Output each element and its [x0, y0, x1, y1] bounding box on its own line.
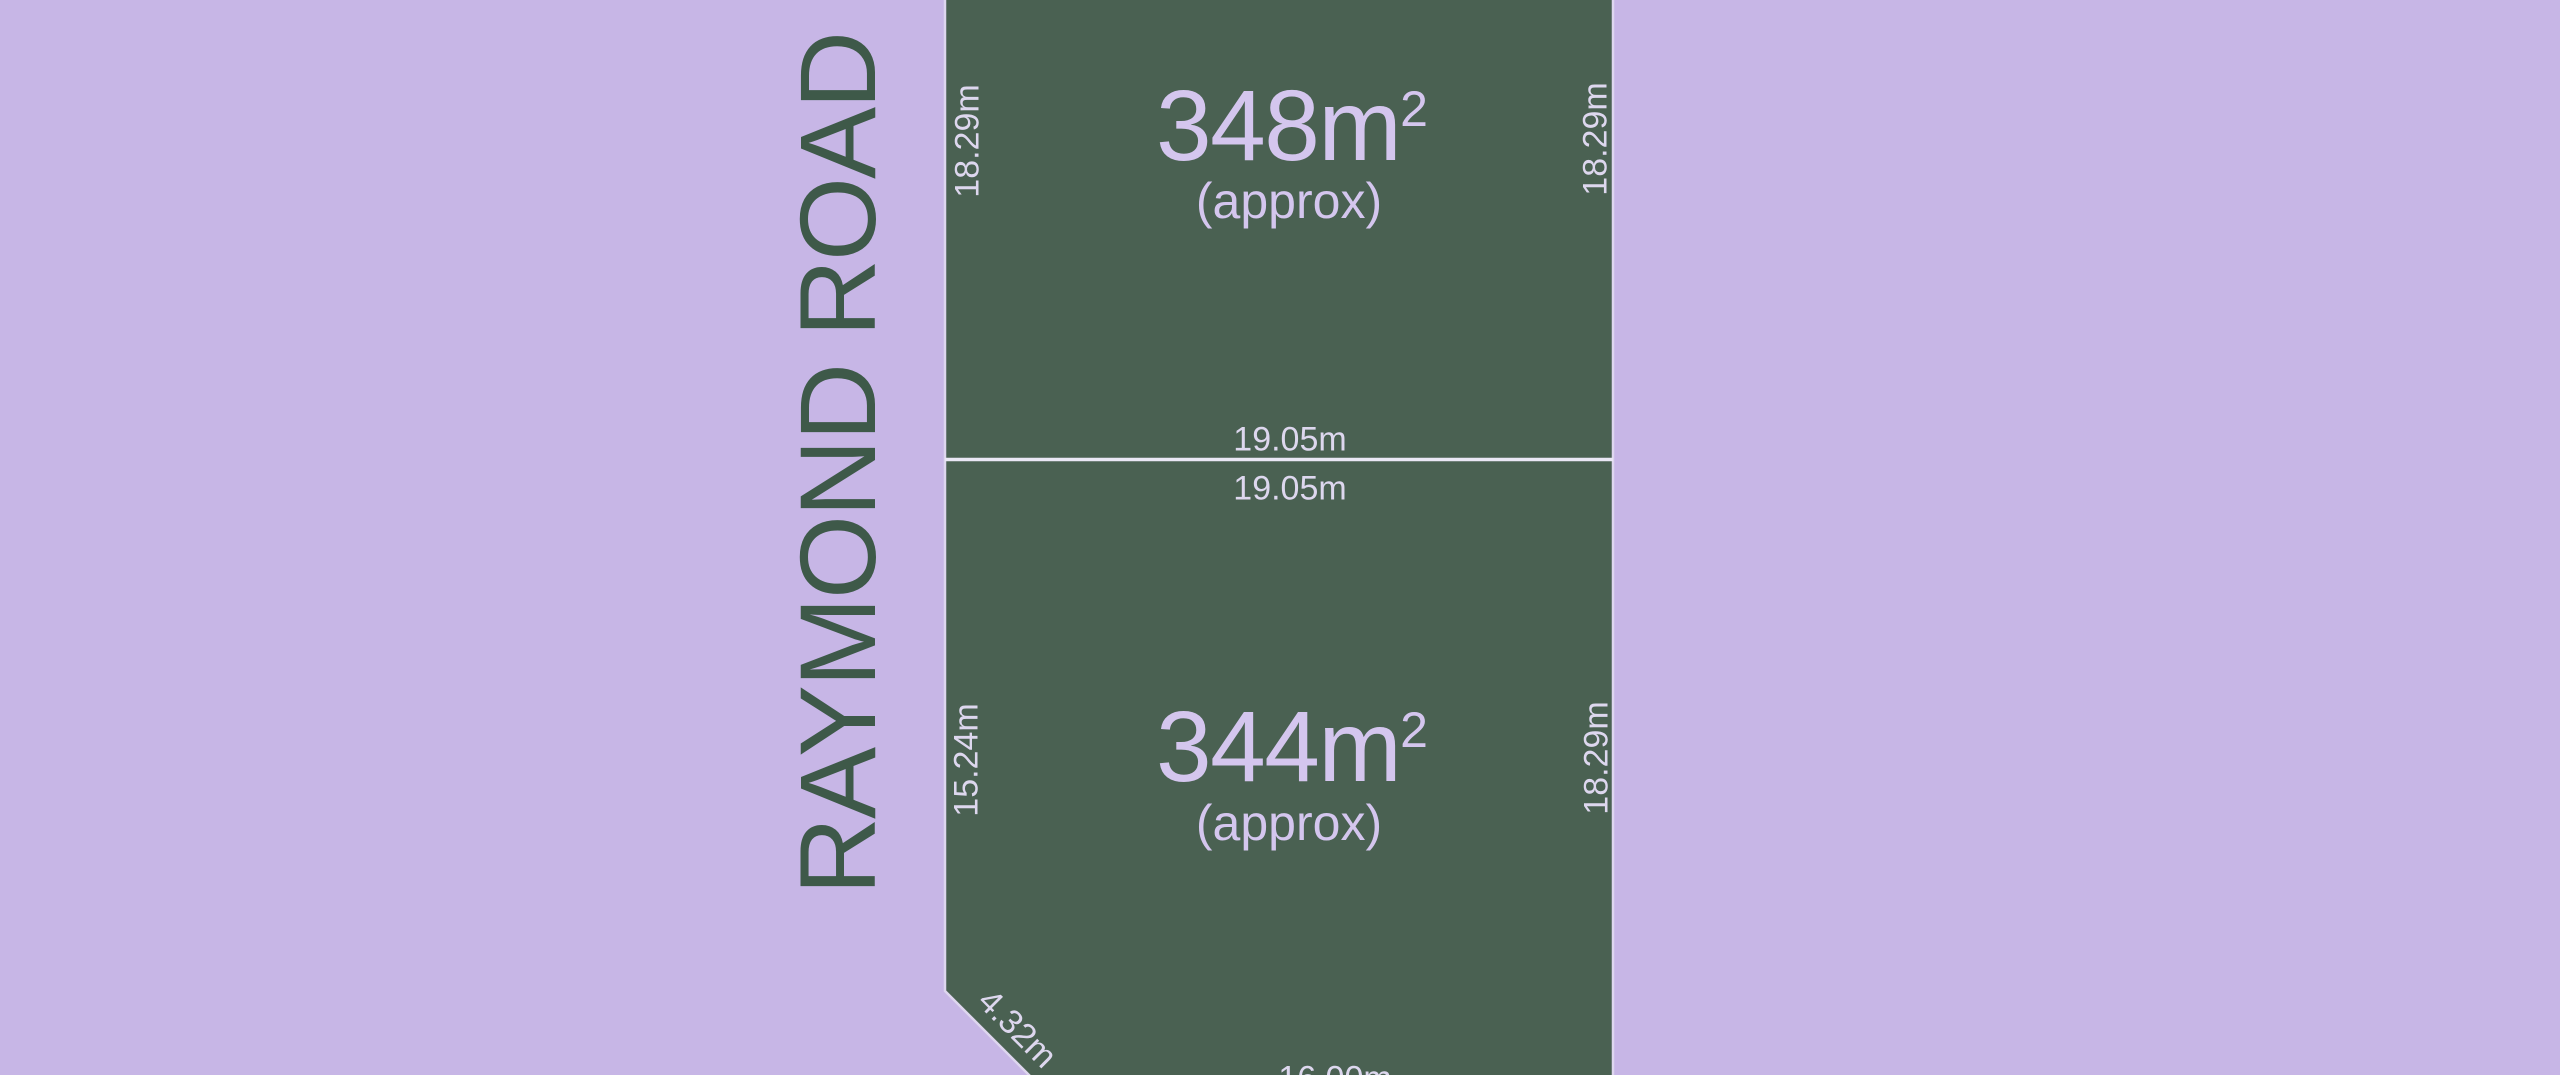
road-name-label: RAYMOND ROAD [784, 33, 892, 895]
lot-1-area-qualifier: (approx) [1196, 176, 1382, 226]
subdivision-plan-canvas: RAYMOND ROAD 348m2 (approx) 344m2 (appro… [0, 0, 2560, 1075]
lot-2-left-dimension: 15.24m [947, 703, 988, 816]
lot-1-area-value: 348m [1156, 70, 1400, 182]
lot-2-area-qualifier: (approx) [1196, 798, 1382, 848]
divider-dimension-below: 19.05m [1233, 469, 1346, 510]
lot-1-right-dimension: 18.29m [1576, 82, 1617, 195]
lot-1-left-dimension: 18.29m [948, 84, 989, 197]
lot-1-area: 348m2 [1156, 76, 1428, 176]
lot-2-bottom-dimension: 16.00m [1278, 1059, 1391, 1075]
lot-2-right-dimension: 18.29m [1577, 701, 1618, 814]
lot-2-area: 344m2 [1156, 697, 1428, 797]
lot-2-area-value: 344m [1156, 691, 1400, 803]
lot-1-area-exponent: 2 [1400, 81, 1428, 137]
divider-dimension-above: 19.05m [1233, 420, 1346, 461]
lot-2-area-exponent: 2 [1400, 702, 1428, 758]
